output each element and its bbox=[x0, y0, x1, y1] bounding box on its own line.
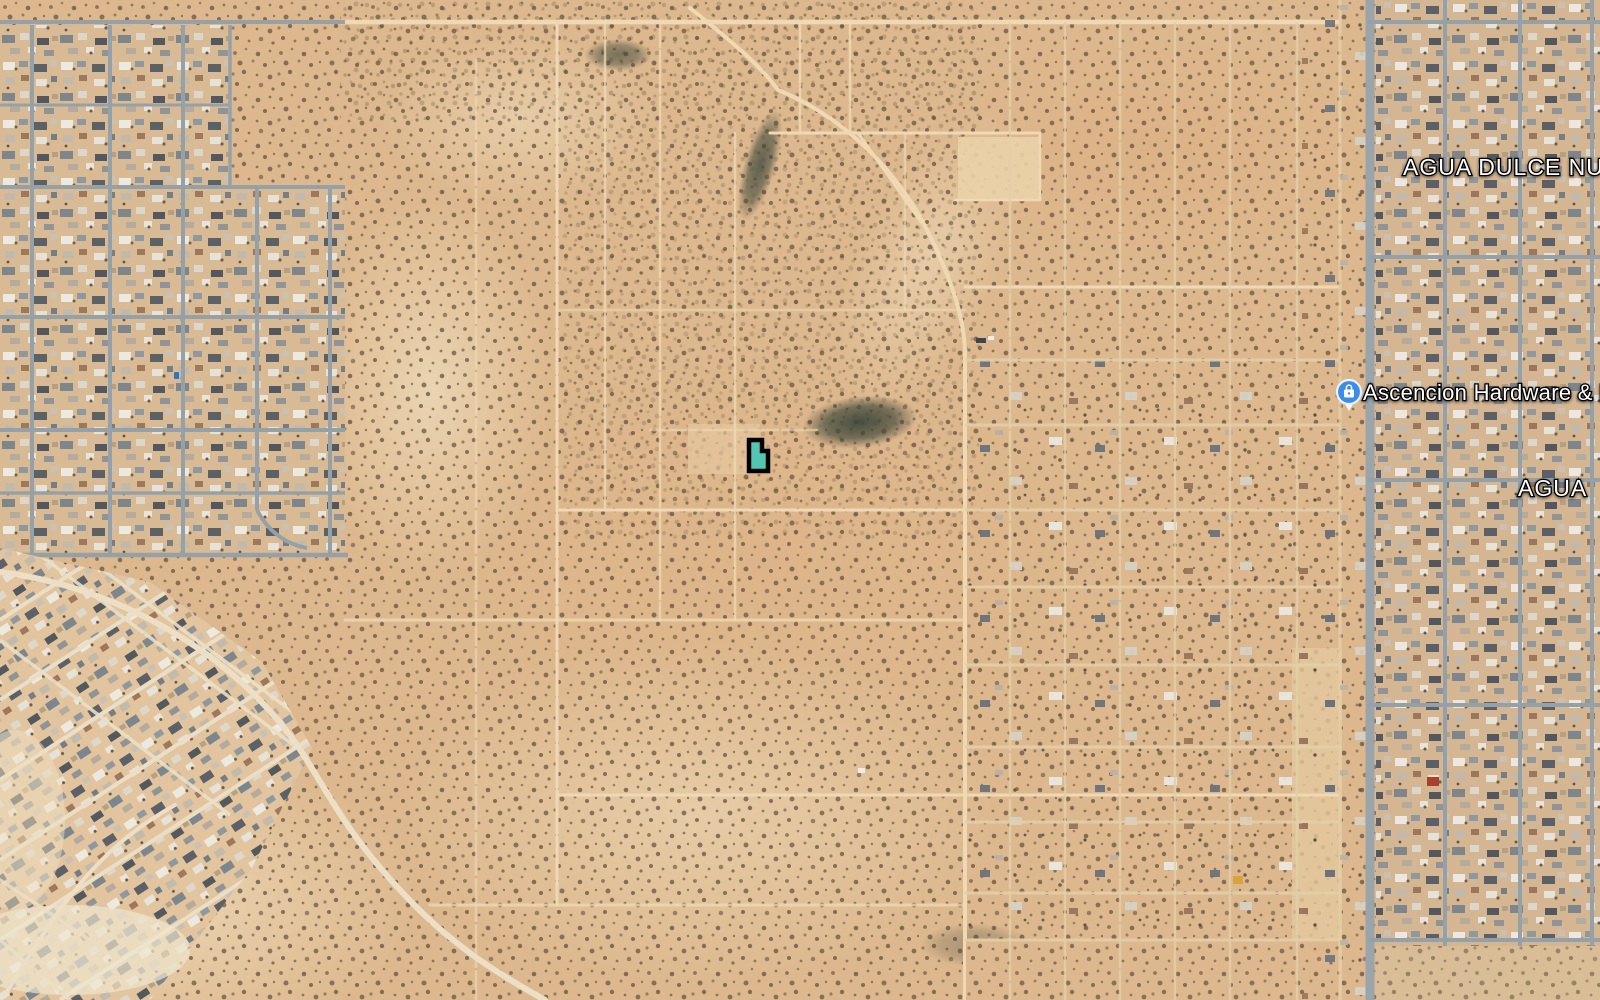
backyard-pool bbox=[174, 372, 179, 379]
satellite-imagery-canvas[interactable]: AGUA DULCE NUM AGUA Ascencion Hardware &… bbox=[0, 0, 1600, 1000]
area-label-agua: AGUA bbox=[1518, 475, 1587, 501]
satellite-map[interactable]: AGUA DULCE NUM AGUA Ascencion Hardware &… bbox=[0, 0, 1600, 1000]
area-label-agua-dulce-num: AGUA DULCE NUM bbox=[1403, 154, 1600, 180]
poi-label-ascencion-hardware-feed[interactable]: Ascencion Hardware & Feed bbox=[1363, 380, 1600, 405]
